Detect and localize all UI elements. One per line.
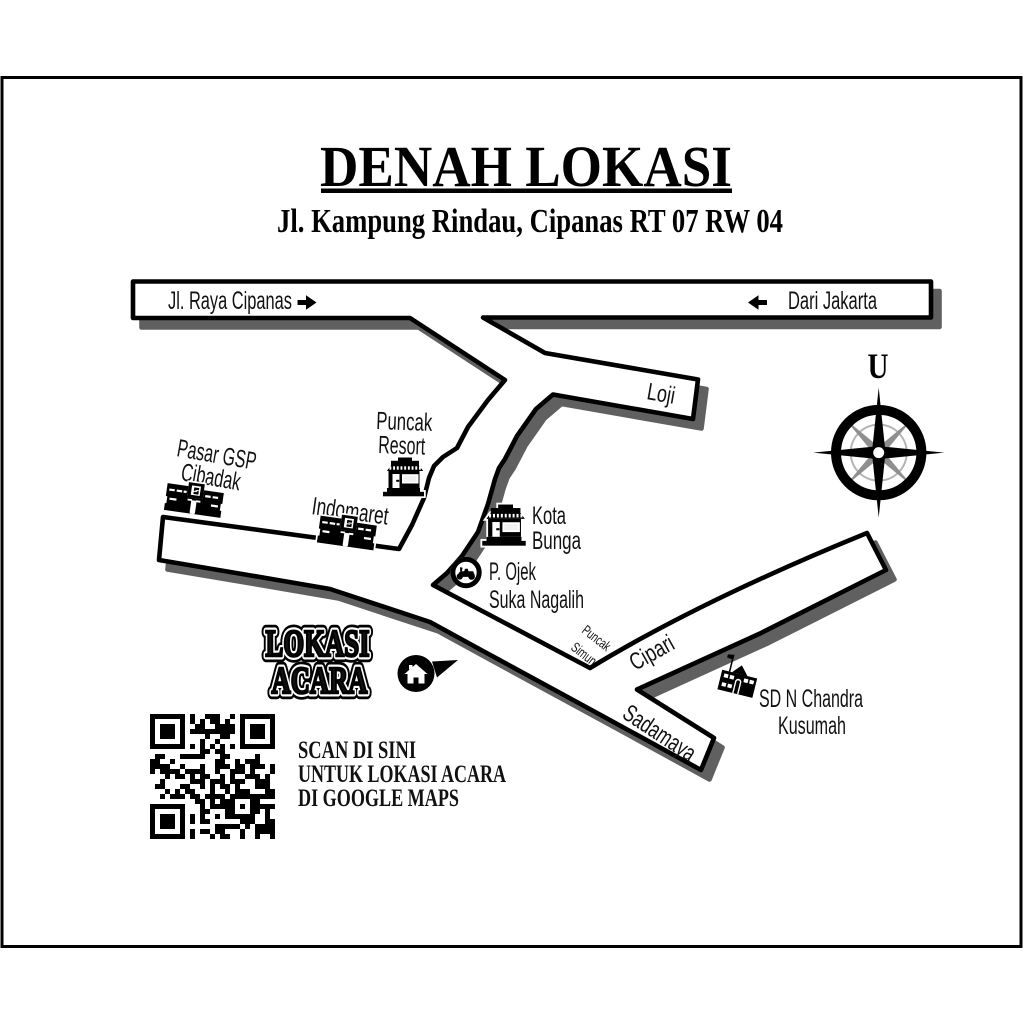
svg-text:Loji: Loji [645, 378, 677, 409]
svg-text:LOKASI: LOKASI [266, 623, 370, 665]
svg-text:Suka Nagalih: Suka Nagalih [489, 586, 584, 614]
svg-text:SD N Chandra: SD N Chandra [759, 685, 863, 713]
svg-text:ACARA: ACARA [272, 660, 368, 702]
svg-text:Kusumah: Kusumah [778, 712, 846, 740]
svg-text:P. Ojek: P. Ojek [489, 558, 536, 586]
svg-text:UNTUK LOKASI ACARA: UNTUK LOKASI ACARA [298, 761, 506, 788]
svg-text:Dari Jakarta: Dari Jakarta [788, 287, 877, 315]
svg-text:Bunga: Bunga [532, 527, 581, 555]
svg-text:U: U [868, 346, 889, 386]
svg-text:Kota: Kota [532, 502, 566, 530]
svg-text:Jl. Raya Cipanas: Jl. Raya Cipanas [168, 287, 292, 315]
svg-text:Jl. Kampung Rindau, Cipanas RT: Jl. Kampung Rindau, Cipanas RT 07 RW 04 [277, 203, 783, 240]
svg-text:SCAN DI SINI: SCAN DI SINI [298, 737, 416, 764]
svg-text:DI GOOGLE MAPS: DI GOOGLE MAPS [298, 785, 459, 812]
